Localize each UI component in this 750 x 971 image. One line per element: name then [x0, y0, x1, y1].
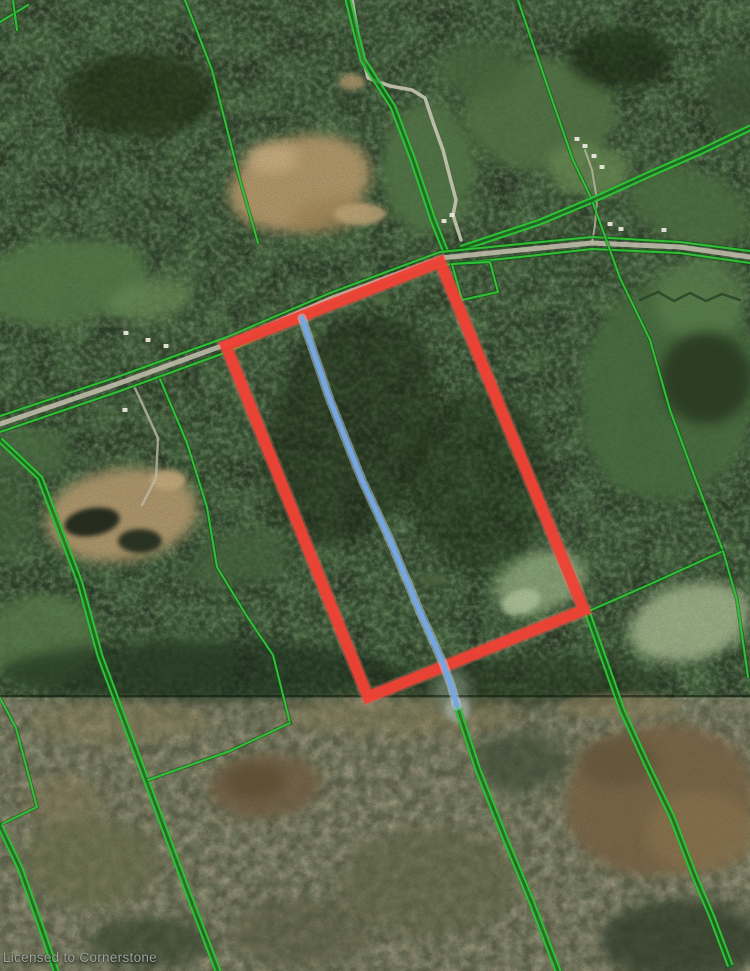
building [450, 213, 455, 217]
building [146, 338, 151, 342]
building [662, 228, 667, 232]
building [583, 144, 588, 148]
building [619, 227, 624, 231]
building [442, 219, 447, 223]
satellite-map-image: Licensed to Cornerstone [0, 0, 750, 971]
building [608, 222, 613, 226]
building [164, 344, 169, 348]
photo-grain [0, 0, 750, 971]
building [123, 408, 128, 412]
building [592, 154, 597, 158]
map-canvas [0, 0, 750, 971]
building [600, 165, 605, 169]
building [124, 331, 129, 335]
building [575, 137, 580, 141]
